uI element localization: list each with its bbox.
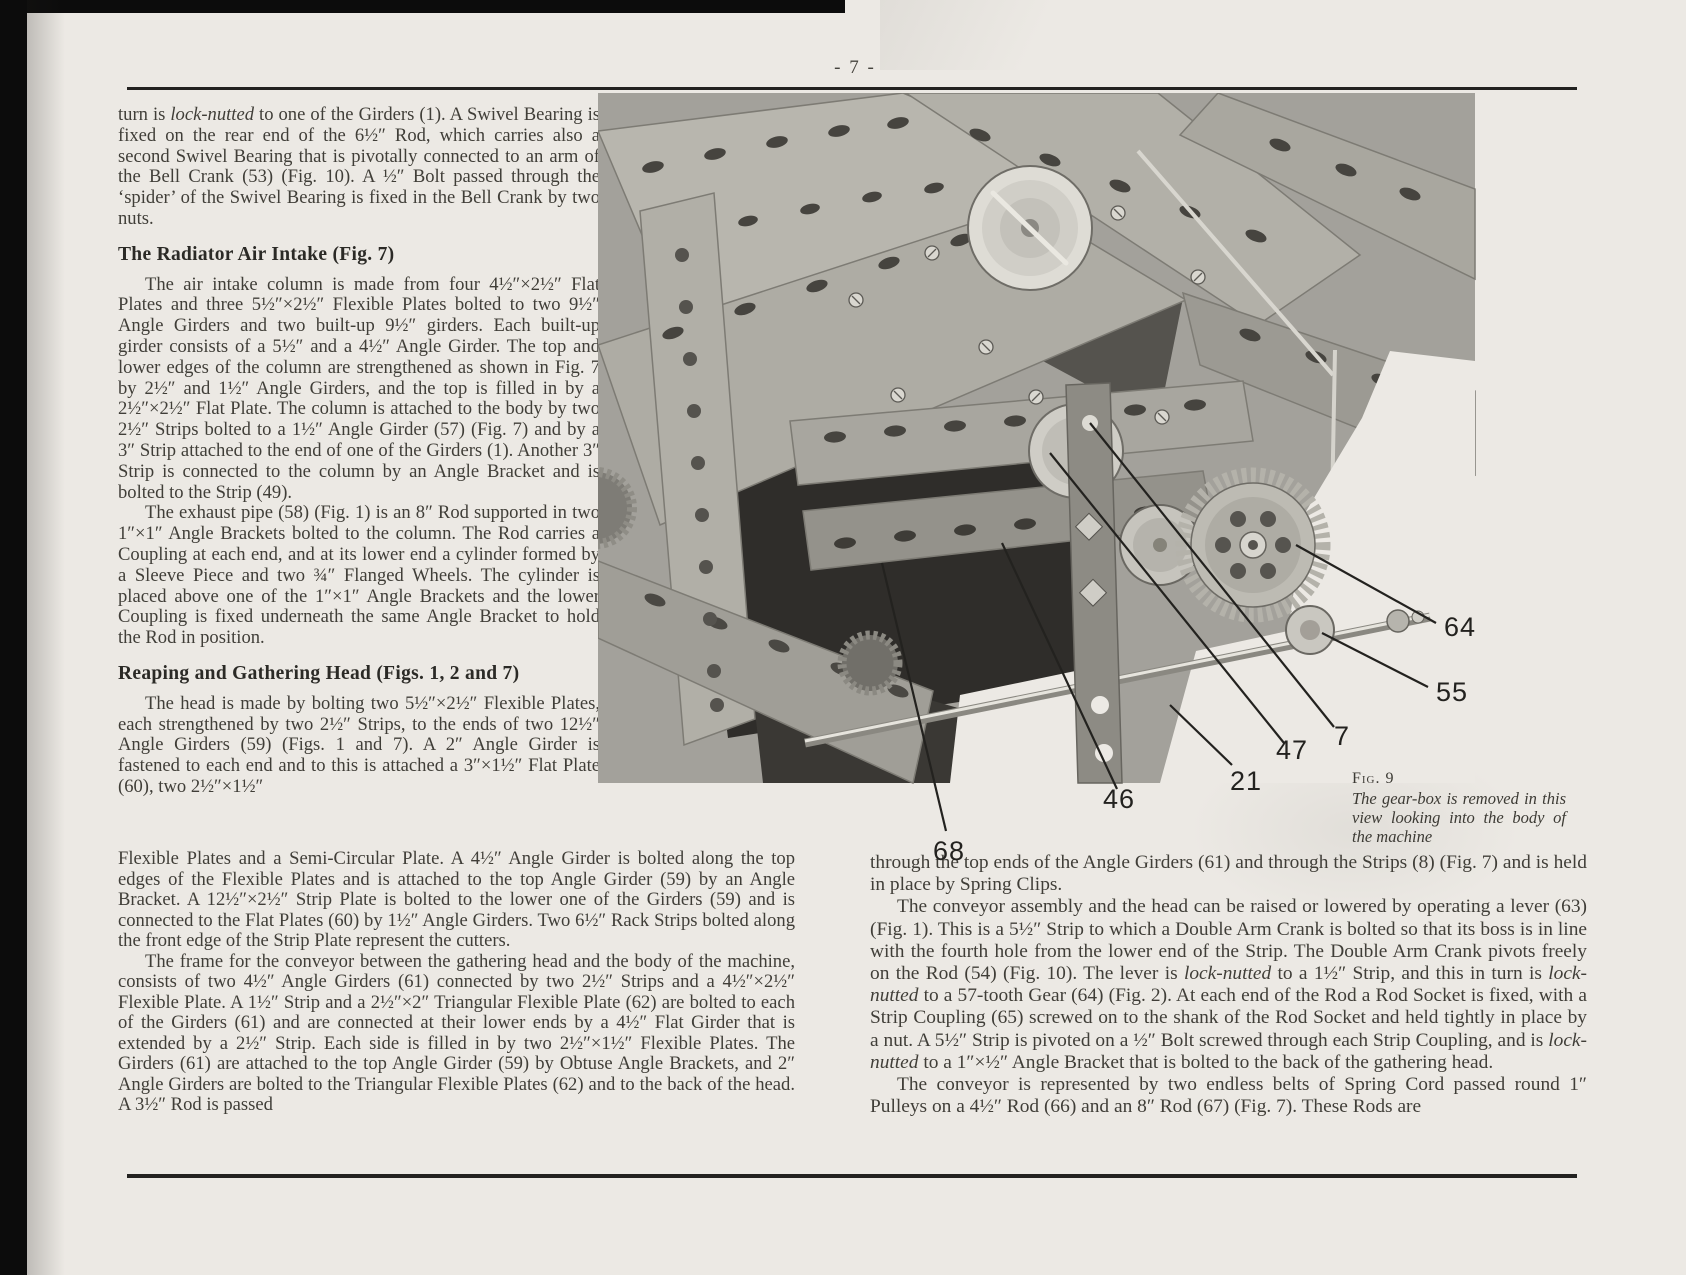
left-column: turn is lock-nutted to one of the Girder… [118,105,600,798]
para-lever-mechanism: The conveyor assembly and the head can b… [870,896,1587,1074]
heading-reaping-gathering-head: Reaping and Gathering Head (Figs. 1, 2 a… [118,664,600,685]
scanned-page: - 7 - turn is lock-nutted to one of the … [0,0,1686,1275]
para-swivel-bearing: turn is lock-nutted to one of the Girder… [118,105,600,230]
left-column-wide: Flexible Plates and a Semi-Circular Plat… [118,849,795,1116]
para-head-construction: The head is made by bolting two 5½″×2½″ … [118,694,600,798]
bottom-rule [127,1174,1577,1178]
page-number: - 7 - [800,57,910,79]
para-conveyor-belts: The conveyor is represented by two endle… [870,1074,1587,1118]
para-exhaust-pipe: The exhaust pipe (58) (Fig. 1) is an 8″ … [118,503,600,649]
para-head-construction-continued: Flexible Plates and a Semi-Circular Plat… [118,849,795,952]
para-conveyor-frame: The frame for the conveyor between the g… [118,952,795,1116]
paper-edge-shadow [27,0,65,1275]
para-rod-spring-clips: through the top ends of the Angle Girder… [870,852,1587,896]
para-air-intake-column: The air intake column is made from four … [118,275,600,504]
paper-crease [880,0,1140,70]
top-rule [127,87,1577,90]
scan-edge-top [0,0,845,13]
heading-radiator-air-intake: The Radiator Air Intake (Fig. 7) [118,245,600,266]
right-column: through the top ends of the Angle Girder… [870,852,1587,1118]
